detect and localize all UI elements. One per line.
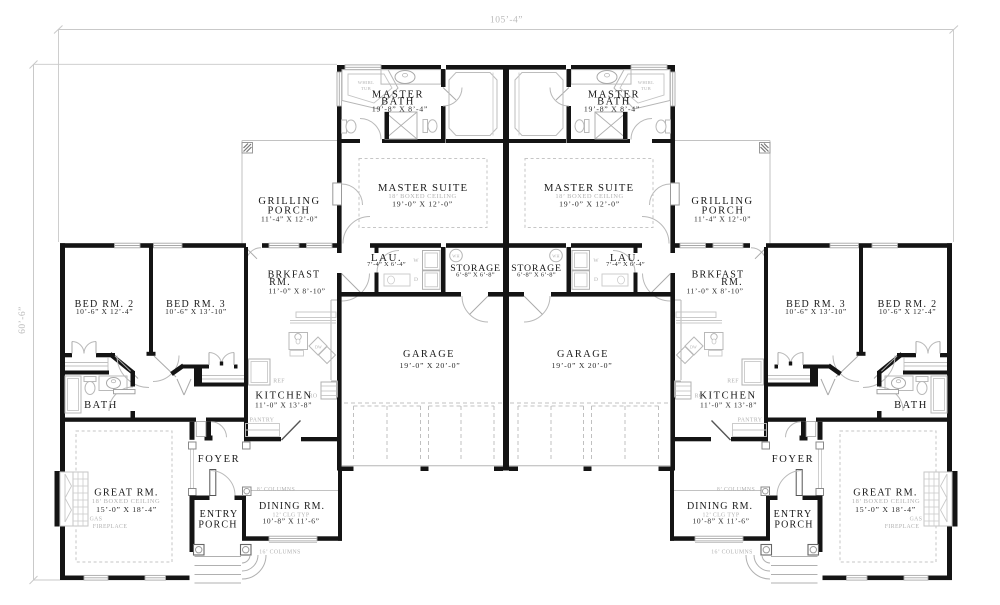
svg-text:18’ BOXED CEILING: 18’ BOXED CEILING [92,498,160,505]
svg-text:60’-6”: 60’-6” [18,306,28,334]
svg-text:PANTRY: PANTRY [738,418,763,424]
svg-text:WH: WH [552,254,559,259]
svg-text:105’-4”: 105’-4” [490,16,523,26]
svg-text:BATH: BATH [84,400,118,411]
svg-text:ENTRY: ENTRY [774,509,813,520]
svg-text:10’-6” X 12’-4”: 10’-6” X 12’-4” [879,307,936,316]
svg-text:19’-8” X 8’-4”: 19’-8” X 8’-4” [584,105,640,114]
svg-text:GAS: GAS [910,517,923,523]
svg-text:REF: REF [727,379,739,385]
svg-text:16’ COLUMNS: 16’ COLUMNS [259,550,301,556]
svg-text:11’-0” X 8’-10”: 11’-0” X 8’-10” [268,287,325,296]
svg-text:GREAT RM.: GREAT RM. [853,488,917,499]
svg-text:11’-4” X 12’-0”: 11’-4” X 12’-0” [694,215,751,224]
svg-text:ENTRY: ENTRY [200,509,239,520]
svg-text:6’-8” X 6’-8”: 6’-8” X 6’-8” [517,272,556,279]
svg-text:19’-8” X 8’-4”: 19’-8” X 8’-4” [372,105,428,114]
svg-text:10’-6” X 13’-10”: 10’-6” X 13’-10” [165,307,227,316]
svg-text:8’ COLUMNS: 8’ COLUMNS [717,487,755,493]
svg-text:DINING RM.: DINING RM. [687,501,753,512]
svg-text:19’-0” X 12’-0”: 19’-0” X 12’-0” [559,200,620,209]
svg-text:DINING RM.: DINING RM. [259,501,325,512]
svg-text:7’-4” X 6’-4”: 7’-4” X 6’-4” [367,261,406,268]
svg-text:WH: WH [452,254,459,259]
svg-text:FIREPLACE: FIREPLACE [93,524,128,530]
svg-text:19’-0” X 20’-0”: 19’-0” X 20’-0” [400,361,461,370]
svg-text:GREAT RM.: GREAT RM. [94,488,158,499]
svg-text:15’-0” X 18’-4”: 15’-0” X 18’-4” [96,505,157,514]
svg-text:BATH: BATH [894,400,928,411]
svg-text:11’-0” X 8’-10”: 11’-0” X 8’-10” [686,287,743,296]
svg-text:TUB: TUB [641,86,651,91]
svg-text:15’-0” X 18’-4”: 15’-0” X 18’-4” [855,505,916,514]
svg-text:PORCH: PORCH [198,520,237,531]
svg-text:7’-4” X 6’-4”: 7’-4” X 6’-4” [606,261,645,268]
svg-text:W: W [413,258,419,264]
svg-text:D: D [414,277,418,283]
svg-text:11’-4” X 12’-0”: 11’-4” X 12’-0” [261,215,318,224]
svg-text:PANTRY: PANTRY [250,418,275,424]
svg-text:11’-0” X 13’-8”: 11’-0” X 13’-8” [700,401,757,410]
svg-text:TUB: TUB [361,86,371,91]
svg-text:FOYER: FOYER [198,454,240,465]
svg-text:GARAGE: GARAGE [557,349,609,360]
svg-text:REF: REF [273,379,285,385]
svg-text:11’-0” X 13’-8”: 11’-0” X 13’-8” [255,401,312,410]
svg-text:GARAGE: GARAGE [403,349,455,360]
svg-text:19’-0” X 20’-0”: 19’-0” X 20’-0” [552,361,613,370]
svg-text:FOYER: FOYER [772,454,814,465]
svg-text:8’ COLUMNS: 8’ COLUMNS [257,487,295,493]
svg-text:16’ COLUMNS: 16’ COLUMNS [711,550,753,556]
svg-text:10’-6” X 13’-10”: 10’-6” X 13’-10” [785,307,847,316]
svg-text:D: D [594,277,598,283]
svg-text:19’-0” X 12’-0”: 19’-0” X 12’-0” [392,200,453,209]
svg-text:WHIRL: WHIRL [358,80,375,85]
svg-text:10’-8” X 11’-6”: 10’-8” X 11’-6” [692,517,749,526]
svg-text:W: W [593,258,599,264]
svg-text:6’-8” X 6’-8”: 6’-8” X 6’-8” [456,272,495,279]
svg-text:DW: DW [690,345,697,350]
svg-text:10’-6” X 12’-4”: 10’-6” X 12’-4” [76,307,133,316]
svg-text:10’-8” X 11’-6”: 10’-8” X 11’-6” [262,517,319,526]
svg-text:PORCH: PORCH [774,520,813,531]
svg-text:FIREPLACE: FIREPLACE [885,524,920,530]
svg-text:DW: DW [315,345,322,350]
svg-text:GAS: GAS [90,517,103,523]
svg-text:18’ BOXED CEILING: 18’ BOXED CEILING [852,498,920,505]
svg-text:WHIRL: WHIRL [638,80,655,85]
